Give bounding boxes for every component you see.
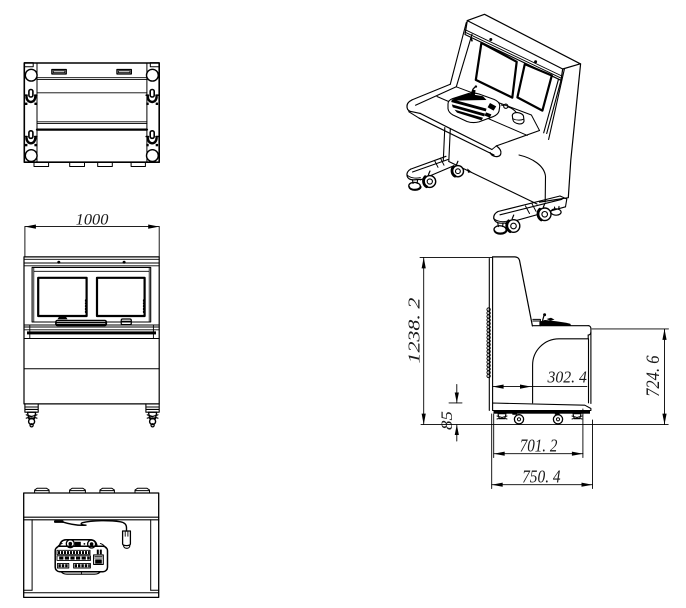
svg-text:85: 85 bbox=[439, 411, 456, 430]
svg-text:701. 2: 701. 2 bbox=[520, 436, 558, 456]
svg-text:302. 4: 302. 4 bbox=[547, 367, 588, 386]
svg-text:1238. 2: 1238. 2 bbox=[405, 297, 424, 363]
svg-text:750. 4: 750. 4 bbox=[522, 467, 561, 487]
svg-text:724. 6: 724. 6 bbox=[643, 355, 664, 397]
svg-text:1000: 1000 bbox=[76, 211, 109, 228]
